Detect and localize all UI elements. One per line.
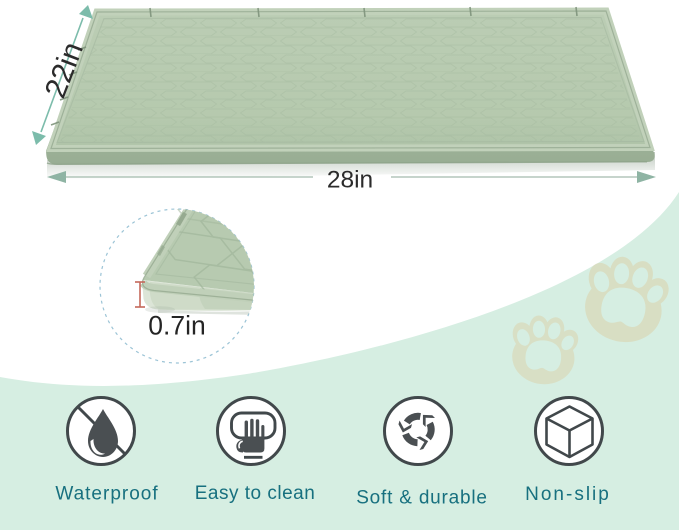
svg-text:Soft & durable: Soft & durable — [356, 488, 488, 509]
svg-text:Waterproof: Waterproof — [55, 484, 158, 505]
svg-text:Easy to clean: Easy to clean — [195, 483, 316, 504]
svg-text:28in: 28in — [327, 167, 373, 194]
svg-text:Non-slip: Non-slip — [525, 484, 611, 505]
svg-text:0.7in: 0.7in — [148, 311, 205, 341]
